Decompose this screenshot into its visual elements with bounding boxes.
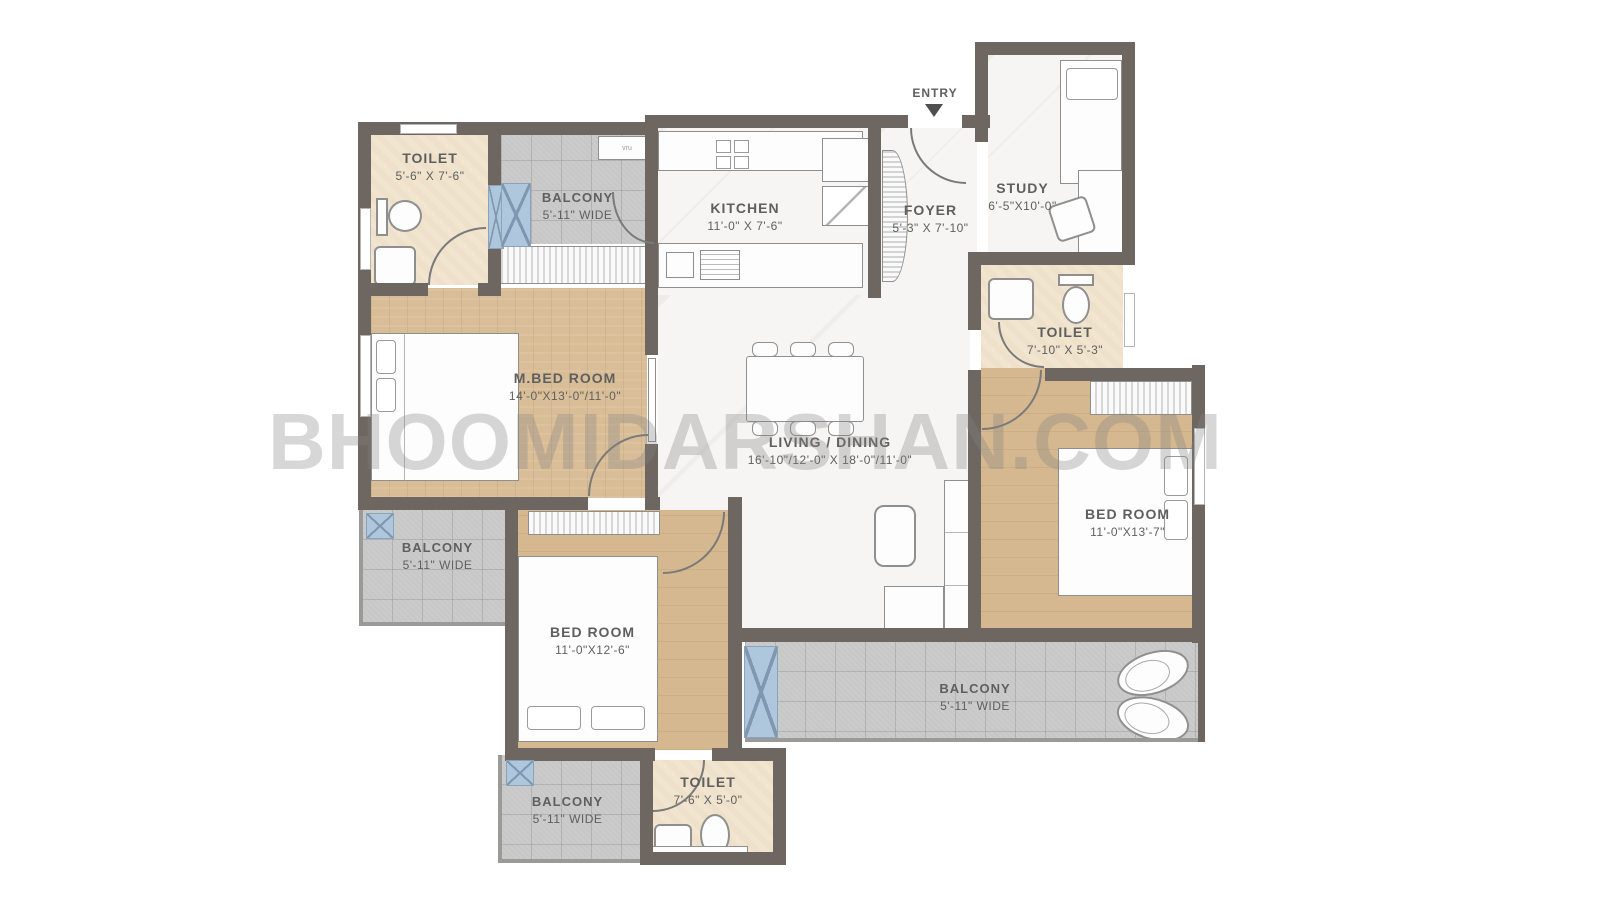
- washbasin: [374, 246, 416, 286]
- stove-burner: [716, 156, 731, 169]
- dining-chair: [790, 342, 816, 357]
- watermark: BHOOMIDARSHAN.COM: [268, 396, 1308, 488]
- wc-bowl: [388, 200, 422, 232]
- wall: [968, 252, 981, 330]
- room-name: STUDY: [955, 180, 1090, 196]
- room-name: BALCONY: [505, 190, 650, 205]
- room-name: BALCONY: [365, 540, 510, 555]
- room-label-balcony-bottom-left: BALCONY 5'-11" WIDE: [495, 794, 640, 826]
- room-label-study: STUDY 6'-5"X10'-0": [955, 180, 1090, 213]
- dining-chair: [752, 342, 778, 357]
- wc-bowl: [1062, 286, 1090, 324]
- wall: [1045, 368, 1205, 381]
- floor-plan: vru T: [0, 0, 1600, 900]
- window-x-panel: [506, 760, 534, 786]
- coffee-table: [874, 505, 916, 567]
- wall: [742, 628, 1205, 642]
- entry-label: ENTRY: [898, 86, 972, 100]
- wall: [728, 497, 742, 760]
- window-x-panel: [366, 513, 394, 539]
- wall: [645, 295, 658, 355]
- wall: [1122, 42, 1135, 265]
- room-dims: 11'-0"X12'-6": [515, 643, 670, 657]
- room-name: TOILET: [370, 150, 490, 166]
- room-label-toilet-bottom: TOILET 7'-6" X 5'-0": [643, 774, 773, 807]
- wall: [978, 252, 1135, 265]
- wall: [645, 497, 660, 510]
- wc-tank: [1058, 274, 1094, 286]
- pillow: [1066, 68, 1118, 100]
- fridge: [822, 138, 870, 182]
- room-name: BALCONY: [900, 681, 1050, 696]
- corner-cabinet: [822, 186, 870, 226]
- window: [360, 208, 371, 270]
- wall: [358, 283, 428, 296]
- room-dims: 7'-10" X 5'-3": [1000, 343, 1130, 357]
- washbasin: [988, 278, 1034, 320]
- room-name: BALCONY: [495, 794, 640, 809]
- room-dims: 5'-11" WIDE: [495, 812, 640, 826]
- stove-burner: [734, 140, 749, 153]
- room-label-toilet-right: TOILET 7'-10" X 5'-3": [1000, 324, 1130, 357]
- room-label-kitchen: KITCHEN 11'-0" X 7'-6": [670, 200, 820, 233]
- wall: [773, 748, 786, 865]
- wardrobe: [528, 511, 660, 535]
- pillow: [376, 340, 396, 374]
- wc-tank: [376, 198, 388, 236]
- dining-chair: [828, 342, 854, 357]
- room-label-bedroom-bottom-left: BED ROOM 11'-0"X12'-6": [515, 624, 670, 657]
- stove-burner: [716, 140, 731, 153]
- wall: [488, 247, 501, 287]
- room-name: TOILET: [643, 774, 773, 790]
- room-name: BED ROOM: [515, 624, 670, 640]
- pillow: [527, 706, 581, 730]
- wall: [1198, 642, 1205, 742]
- room-label-toilet-top-left: TOILET 5'-6" X 7'-6": [370, 150, 490, 183]
- room-dims: 11'-0" X 7'-6": [670, 219, 820, 233]
- balcony-railing: [359, 510, 363, 626]
- room-dims: 5'-6" X 7'-6": [370, 169, 490, 183]
- wardrobe: [490, 246, 657, 284]
- window: [400, 124, 457, 134]
- window-x-panel: [744, 646, 778, 738]
- vent-label: vru: [622, 145, 632, 152]
- room-dims: 6'-5"X10'-0": [955, 199, 1090, 213]
- balcony-railing: [745, 738, 1205, 742]
- room-label-bedroom-right: BED ROOM 11'-0"X13'-7": [1050, 506, 1205, 539]
- sink-basin: [666, 252, 694, 278]
- wall: [975, 42, 988, 142]
- wall: [358, 497, 588, 510]
- room-dims: 5'-3" X 7'-10": [868, 221, 993, 235]
- entry-text: ENTRY: [898, 86, 972, 100]
- room-name: KITCHEN: [670, 200, 820, 216]
- balcony-railing: [359, 622, 509, 626]
- room-name: BED ROOM: [1050, 506, 1205, 522]
- room-label-balcony-top-left: BALCONY 5'-11" WIDE: [505, 190, 650, 222]
- room-dims: 7'-6" X 5'-0": [643, 793, 773, 807]
- pillow: [591, 706, 645, 730]
- room-label-balcony-bottom-right: BALCONY 5'-11" WIDE: [900, 681, 1050, 713]
- room-name: TOILET: [1000, 324, 1130, 340]
- room-name: M.BED ROOM: [470, 370, 660, 386]
- entry-arrow-icon: [925, 104, 943, 117]
- room-label-balcony-left: BALCONY 5'-11" WIDE: [365, 540, 510, 572]
- balcony-railing: [498, 859, 644, 863]
- room-dims: 5'-11" WIDE: [505, 208, 650, 222]
- sink-drainer: [700, 250, 740, 280]
- room-dims: 11'-0"X13'-7": [1050, 525, 1205, 539]
- wall: [975, 42, 1135, 55]
- stove-burner: [734, 156, 749, 169]
- wall: [640, 852, 786, 865]
- room-dims: 5'-11" WIDE: [900, 699, 1050, 713]
- room-dims: 5'-11" WIDE: [365, 558, 510, 572]
